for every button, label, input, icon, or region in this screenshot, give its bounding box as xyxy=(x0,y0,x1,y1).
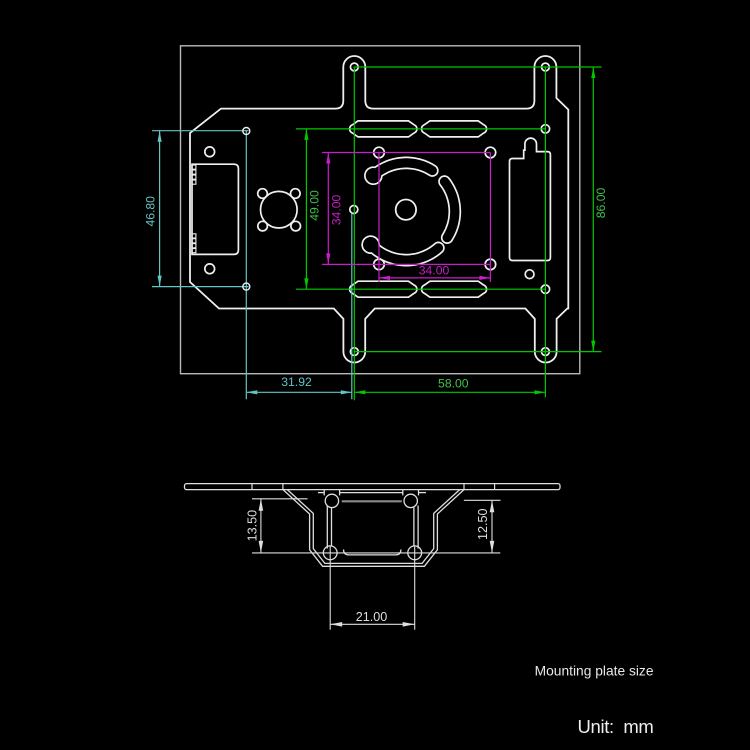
svg-text:12.50: 12.50 xyxy=(476,509,490,541)
svg-text:34.00: 34.00 xyxy=(419,264,450,278)
svg-text:46.80: 46.80 xyxy=(144,196,158,227)
svg-text:21.00: 21.00 xyxy=(356,610,388,624)
svg-text:31.92: 31.92 xyxy=(281,375,312,389)
svg-text:13.50: 13.50 xyxy=(246,510,260,542)
svg-text:86.00: 86.00 xyxy=(594,188,608,219)
svg-text:Unit: mm: Unit: mm xyxy=(578,716,654,737)
svg-text:58.00: 58.00 xyxy=(438,376,469,390)
svg-text:49.00: 49.00 xyxy=(308,190,322,221)
svg-text:34.00: 34.00 xyxy=(330,195,344,226)
svg-text:Mounting plate size: Mounting plate size xyxy=(535,664,654,679)
